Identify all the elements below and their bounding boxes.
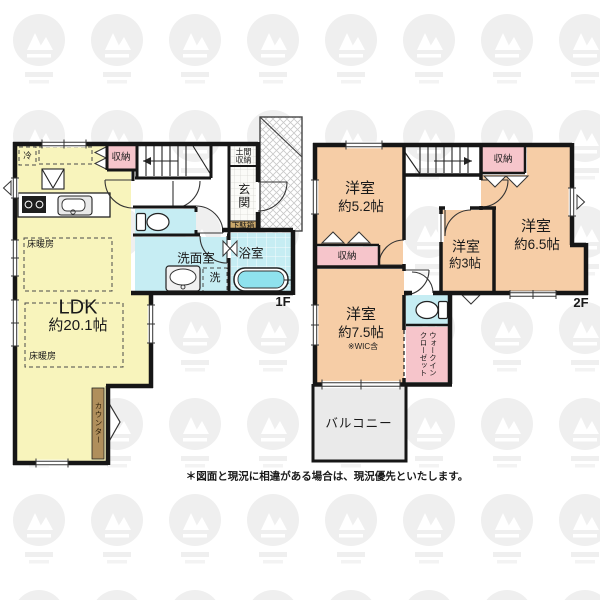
wic-label-line1: ウォークイン — [428, 332, 437, 377]
window-marker-right — [577, 195, 585, 209]
bathroom-label: 浴室 — [238, 247, 263, 260]
floorplan-canvas: 冷 収納 土間収納 玄関 下駄箱 床暖房 床暖房 LDK 約20.1帖 洗面室 … — [0, 0, 600, 600]
wic-label-line2: クローゼット — [419, 332, 428, 377]
range-hood-icon — [42, 169, 64, 189]
stairs-1f — [143, 146, 211, 176]
entrance-label: 玄関 — [237, 183, 250, 209]
wic-label: ウォークイン クローゼット — [419, 332, 438, 377]
balcony-sliding-door — [322, 380, 400, 390]
washroom-label: 洗面室 — [177, 252, 215, 265]
disclaimer-text: ＊図面と現況に相違がある場合は、現況優先といたします。 — [186, 471, 468, 482]
floor-heating-label-1: 床暖房 — [27, 240, 54, 249]
shoe-cabinet-label: 下駄箱 — [232, 222, 255, 230]
porch — [260, 117, 302, 231]
bedroom-75-name: 洋室 — [346, 307, 376, 323]
vanity-sink-icon — [166, 266, 200, 291]
sink-icon — [58, 196, 92, 215]
balcony-label: バルコニー — [325, 417, 392, 430]
bedroom-52-size: 約5.2帖 — [338, 200, 384, 214]
window-marker-left — [4, 181, 12, 195]
floor-2f-label: 2F — [573, 296, 588, 310]
toilet-1f-icon — [137, 214, 170, 231]
refrigerator-label: 冷 — [23, 152, 32, 161]
toilet-2f-icon — [416, 302, 448, 319]
bedroom-75-size: 約7.5帖 — [338, 326, 384, 340]
storage-2f-left-label: 収納 — [337, 252, 356, 262]
bedroom-52-name: 洋室 — [345, 181, 375, 197]
counter-label: カウンター — [94, 402, 102, 445]
bathtub-icon — [234, 268, 292, 291]
storage-1f-label: 収納 — [111, 153, 130, 163]
bedroom-75-note: ※WIC含 — [348, 343, 378, 351]
bedroom-65-size: 約6.5帖 — [514, 238, 560, 252]
floor-heating-label-2: 床暖房 — [29, 352, 56, 361]
ldk-name: LDK — [59, 298, 98, 319]
stairs-2f — [404, 147, 472, 174]
doma-storage-label: 土間収納 — [234, 149, 254, 166]
floor-1f-label: 1F — [275, 295, 290, 309]
bedroom-3-name: 洋室 — [452, 240, 480, 255]
ldk-size: 約20.1帖 — [48, 318, 107, 334]
storage-2f-right-label: 収納 — [493, 155, 512, 165]
bedroom-3-size: 約3帖 — [449, 257, 481, 270]
washer-label: 洗 — [210, 273, 221, 285]
bedroom-65-name: 洋室 — [521, 219, 551, 235]
